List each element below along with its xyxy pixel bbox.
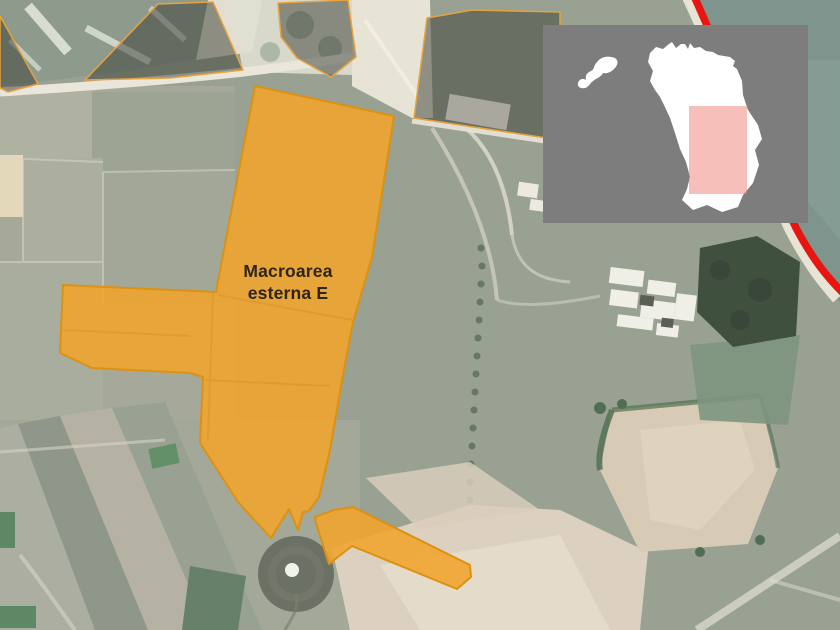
inset-highlight-rect [689, 106, 747, 194]
dark-green-field [182, 566, 246, 630]
location-inset [543, 25, 808, 223]
macroarea-map-figure: Macroarea esterna E [0, 0, 840, 630]
satellite-map [0, 0, 840, 630]
